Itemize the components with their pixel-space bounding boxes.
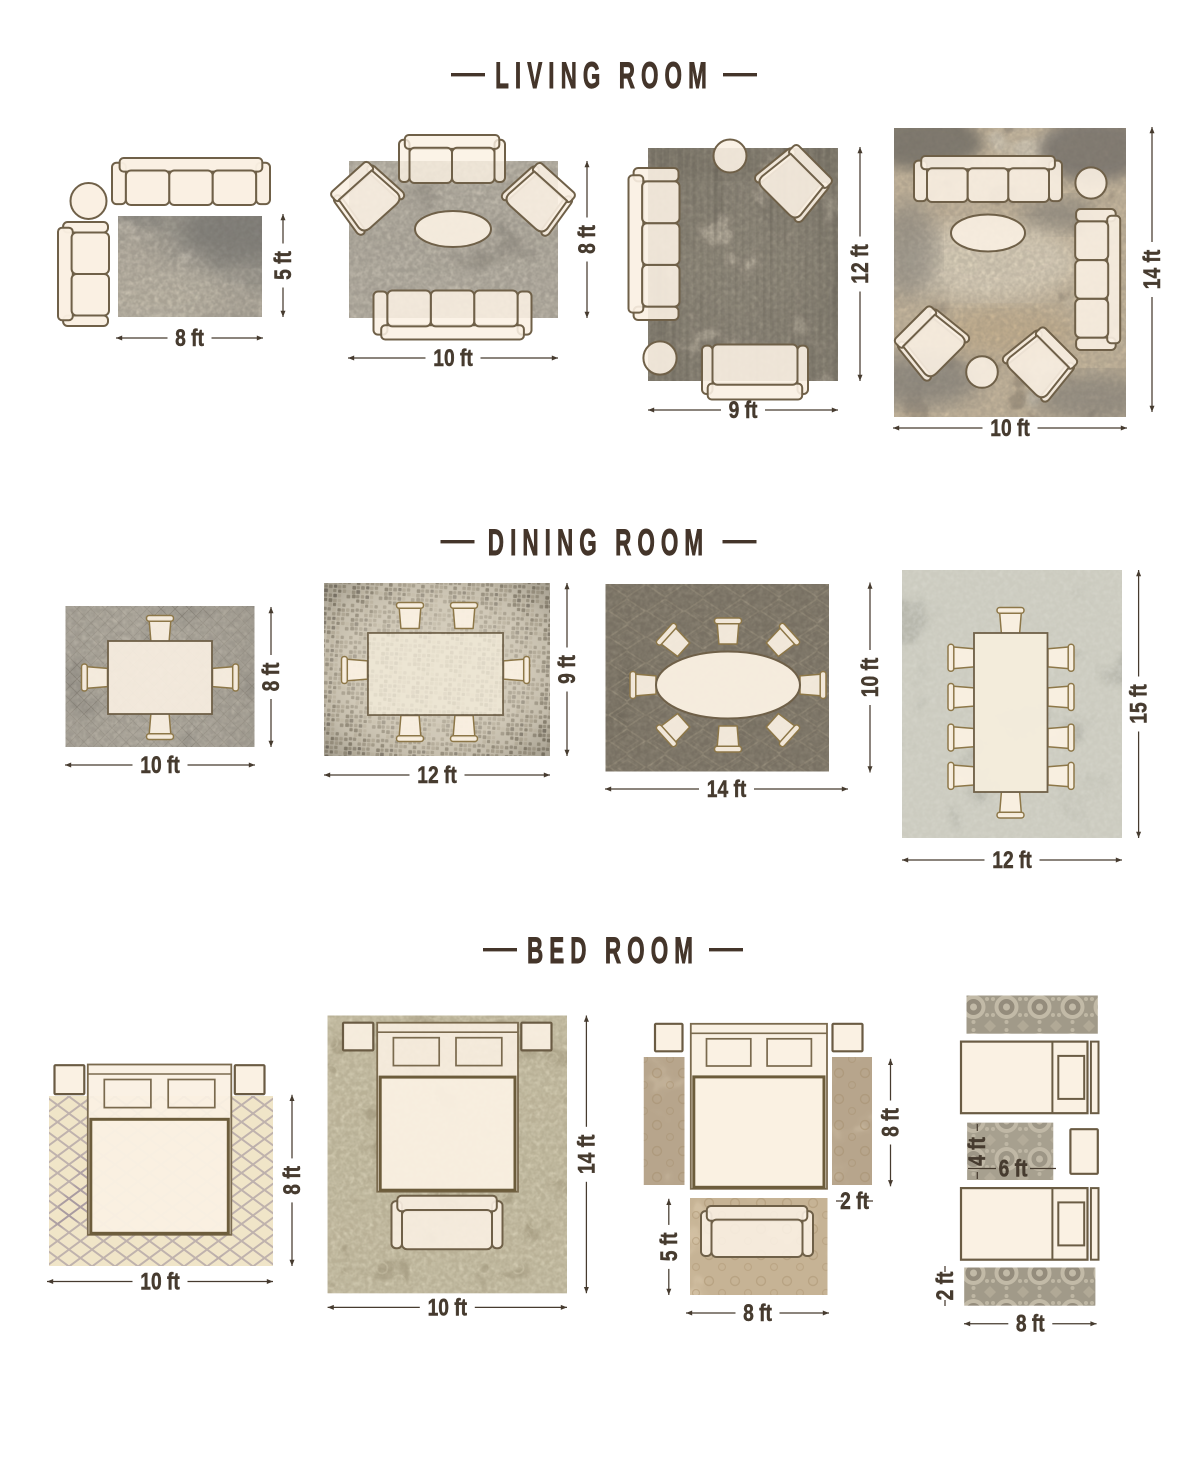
svg-text:8 ft: 8 ft — [743, 1299, 772, 1327]
svg-text:8 ft: 8 ft — [573, 225, 601, 254]
svg-text:9 ft: 9 ft — [729, 396, 758, 424]
svg-text:10 ft: 10 ft — [433, 344, 472, 372]
svg-text:9 ft: 9 ft — [553, 655, 581, 684]
svg-text:DINING ROOM: DINING ROOM — [488, 522, 709, 563]
svg-text:2 ft: 2 ft — [840, 1187, 869, 1215]
svg-text:12 ft: 12 ft — [992, 846, 1031, 874]
svg-text:4 ft: 4 ft — [963, 1137, 991, 1166]
svg-text:8 ft: 8 ft — [278, 1166, 306, 1195]
svg-text:10 ft: 10 ft — [990, 414, 1029, 442]
svg-text:8 ft: 8 ft — [257, 663, 285, 692]
svg-text:14 ft: 14 ft — [707, 775, 746, 803]
svg-text:LIVING ROOM: LIVING ROOM — [495, 55, 713, 96]
svg-text:8 ft: 8 ft — [1016, 1310, 1045, 1338]
svg-text:10 ft: 10 ft — [856, 658, 884, 697]
svg-text:8 ft: 8 ft — [876, 1108, 904, 1137]
svg-text:12 ft: 12 ft — [846, 244, 874, 283]
svg-text:5 ft: 5 ft — [269, 251, 297, 280]
svg-text:10 ft: 10 ft — [140, 1267, 179, 1295]
svg-text:10 ft: 10 ft — [428, 1293, 467, 1321]
svg-text:15 ft: 15 ft — [1125, 684, 1153, 723]
svg-text:8 ft: 8 ft — [175, 324, 204, 352]
svg-text:12 ft: 12 ft — [417, 761, 456, 789]
svg-text:10 ft: 10 ft — [140, 751, 179, 779]
svg-text:BED ROOM: BED ROOM — [527, 930, 699, 971]
svg-text:6 ft: 6 ft — [999, 1154, 1028, 1182]
svg-text:14 ft: 14 ft — [572, 1135, 600, 1174]
svg-text:14 ft: 14 ft — [1138, 250, 1166, 289]
svg-text:5 ft: 5 ft — [655, 1233, 683, 1262]
svg-text:2 ft: 2 ft — [931, 1272, 959, 1301]
